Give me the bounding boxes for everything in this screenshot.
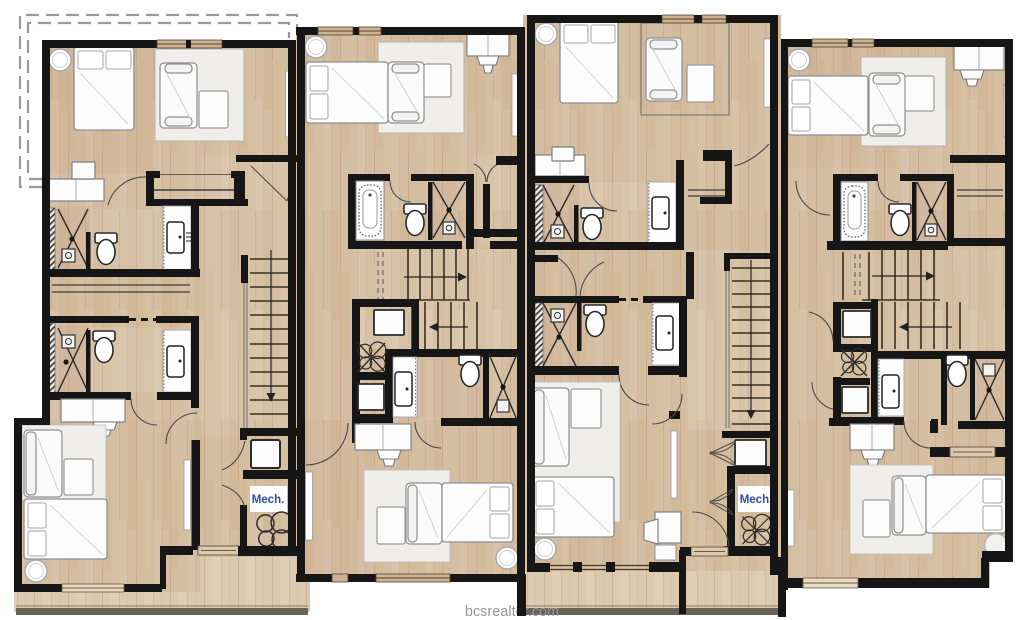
svg-text:bcsrealtor.com: bcsrealtor.com <box>465 604 559 620</box>
svg-text:Mech.: Mech. <box>252 494 285 506</box>
svg-text:Mech.: Mech. <box>740 494 773 506</box>
